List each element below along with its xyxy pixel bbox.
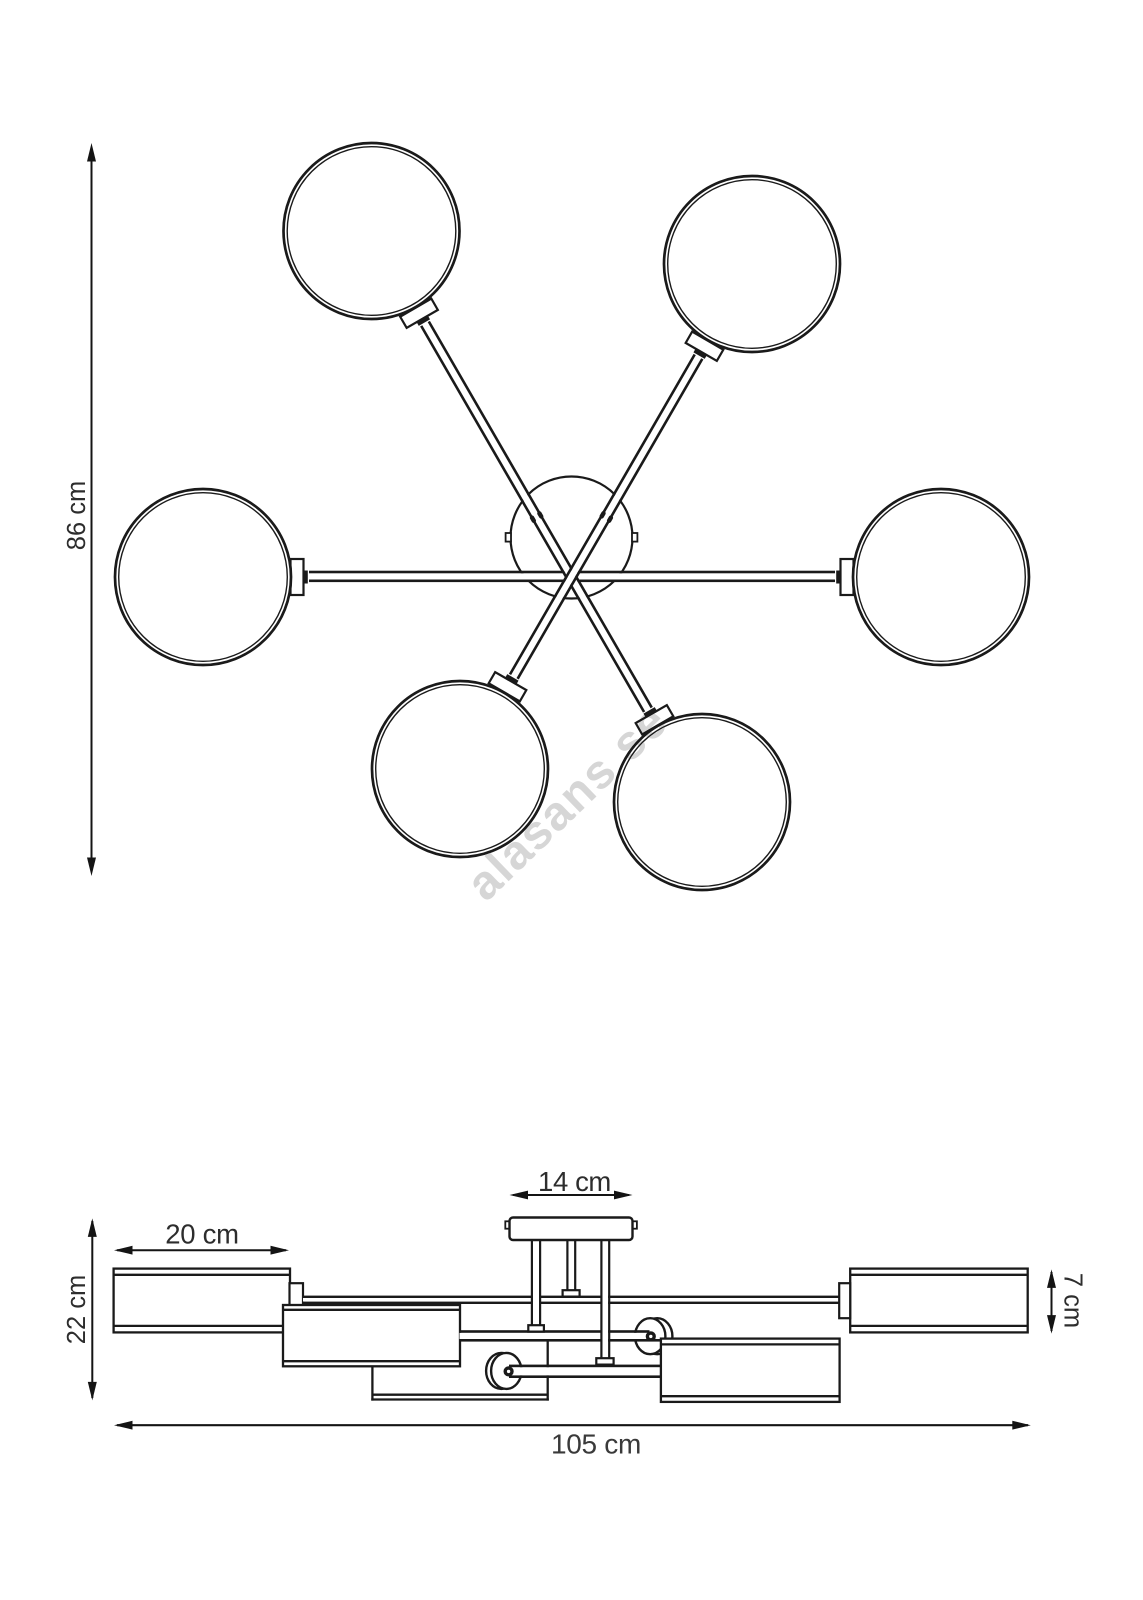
svg-text:22 cm: 22 cm xyxy=(63,1275,91,1344)
svg-text:7 cm: 7 cm xyxy=(1058,1273,1086,1328)
svg-text:14 cm: 14 cm xyxy=(538,1166,611,1197)
svg-text:105 cm: 105 cm xyxy=(551,1429,641,1460)
svg-text:20 cm: 20 cm xyxy=(165,1219,238,1250)
svg-text:86 cm: 86 cm xyxy=(63,481,91,550)
